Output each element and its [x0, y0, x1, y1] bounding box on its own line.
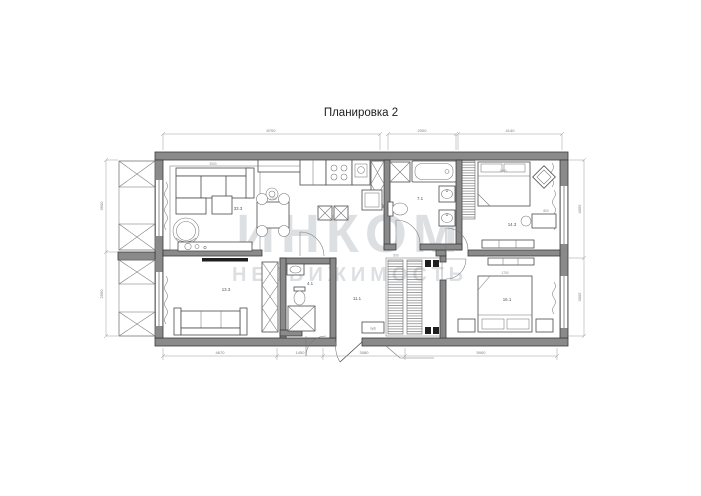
- room-area-label: 14.3: [508, 222, 517, 227]
- bed-icon: [478, 276, 532, 332]
- low-shelf-label: низкий стеллаж: [500, 253, 524, 257]
- wall-bath1-right: [456, 160, 462, 250]
- straight-sofa-icon: [174, 308, 247, 335]
- wall-bath1-bottom-a: [384, 244, 396, 250]
- sink-icon: [439, 210, 455, 226]
- wall-balcony-divider: [118, 252, 155, 260]
- dim-label: 3005: [577, 292, 582, 302]
- appliance-icon: [334, 206, 348, 220]
- wall-bed2-left: [440, 280, 446, 338]
- shoe-box-icon: [425, 260, 431, 267]
- pouf-icon: пуф: [362, 322, 384, 333]
- chair-icon: [257, 226, 268, 237]
- balcony-top-left: [119, 161, 155, 250]
- wall-bottom-left: [155, 338, 336, 346]
- room-area-label: 16.1: [503, 297, 512, 302]
- shoe-box-icon: [433, 327, 439, 334]
- dim-label: 2000: [418, 128, 428, 133]
- chair-icon: [521, 216, 531, 226]
- chair-icon: [279, 226, 290, 237]
- round-armchair-icon: [173, 218, 199, 244]
- tv-icon: [202, 258, 248, 262]
- tv-console-icon: [178, 242, 252, 251]
- room-area-label: 13.3: [222, 287, 231, 292]
- stove-icon: [326, 160, 352, 185]
- curtain-icon: [165, 182, 168, 230]
- chair-icon: [257, 194, 268, 205]
- balcony-bottom-left: [119, 260, 155, 336]
- floor-plan-canvas: Планировка 2 ИНКОМ НЕДВИЖИМОСТЬ: [0, 0, 701, 496]
- window-right-bottom: [560, 276, 568, 328]
- dim-label: 1200: [269, 197, 276, 201]
- dishwasher-icon: [318, 206, 332, 220]
- dim-label: 1600: [499, 169, 506, 173]
- shoe-box-icon: [433, 260, 439, 267]
- dim-label: 800: [543, 209, 549, 213]
- wall-bed2-stub: [440, 256, 446, 262]
- wall-bath1-bottom-b: [420, 244, 462, 250]
- low-shelf-icon: [488, 258, 534, 265]
- nightstand-icon: [536, 319, 553, 332]
- dim-label: 1450: [296, 350, 306, 355]
- wardrobe-cabinet-icon: [262, 262, 278, 332]
- window-right-top: [560, 186, 568, 244]
- dim-label: 1700: [429, 155, 436, 159]
- dim-label: 1700: [501, 271, 508, 275]
- wall-bottom-right: [362, 338, 568, 346]
- desk-icon: [521, 214, 556, 228]
- dim-label: 4140: [506, 128, 516, 133]
- room-area-label: 7.1: [417, 196, 424, 201]
- wall-mid-right-a: [436, 250, 446, 256]
- curtain-icon: [165, 276, 168, 324]
- dining-table-icon: [257, 202, 289, 228]
- chair-icon: [279, 194, 290, 205]
- dim-label: 4670: [216, 350, 226, 355]
- toilet-icon: [388, 202, 408, 216]
- washing-machine-icon: [288, 306, 315, 331]
- accent-armchair-icon: [533, 166, 556, 189]
- wall-bath2-top: [280, 258, 336, 264]
- nightstand-icon: [458, 319, 475, 332]
- room-area-label: 11.1: [353, 296, 362, 301]
- curtain-icon: [553, 282, 556, 314]
- window-left-top: [155, 180, 163, 236]
- kitchen-sink-icon: [352, 160, 370, 185]
- floor-plan-page: Планировка 2 ИНКОМ НЕДВИЖИМОСТЬ: [0, 0, 701, 496]
- closet-rail-icon: [462, 161, 475, 219]
- dim-label: 4055: [577, 204, 582, 214]
- pouf-label: пуф: [370, 327, 376, 331]
- window-left-bottom: [155, 272, 163, 326]
- coffee-table-icon: [212, 196, 232, 214]
- wall-bath2-right: [330, 258, 336, 338]
- dim-label: 600: [336, 155, 342, 159]
- oven-icon: [362, 190, 382, 210]
- dim-label: 3080: [360, 350, 370, 355]
- page-title: Планировка 2: [324, 107, 398, 119]
- shoe-box-icon: [425, 327, 431, 334]
- room-area-label: 4.1: [307, 281, 314, 286]
- dim-label: 3900: [99, 201, 104, 211]
- dim-label: 5900: [477, 350, 487, 355]
- low-shelf-icon: [482, 240, 534, 248]
- bathtub-icon: [412, 161, 456, 182]
- dim-label: 500: [393, 254, 399, 258]
- wall-bath2-left: [280, 258, 286, 338]
- wardrobe-rail-icon: [388, 260, 403, 334]
- dim-label: 8700: [267, 128, 277, 133]
- wardrobe-rail-icon: [407, 260, 422, 334]
- sink-icon: [439, 186, 455, 202]
- washing-machine-icon: [390, 162, 410, 182]
- dim-label: 2950: [99, 289, 104, 299]
- toilet-icon: [294, 287, 305, 305]
- room-area-label: 33.3: [234, 206, 243, 211]
- dim-label: 3000: [209, 162, 216, 166]
- wall-top: [155, 152, 568, 160]
- sink-icon: [287, 264, 304, 275]
- cabinet-room: 13.3: [174, 258, 278, 335]
